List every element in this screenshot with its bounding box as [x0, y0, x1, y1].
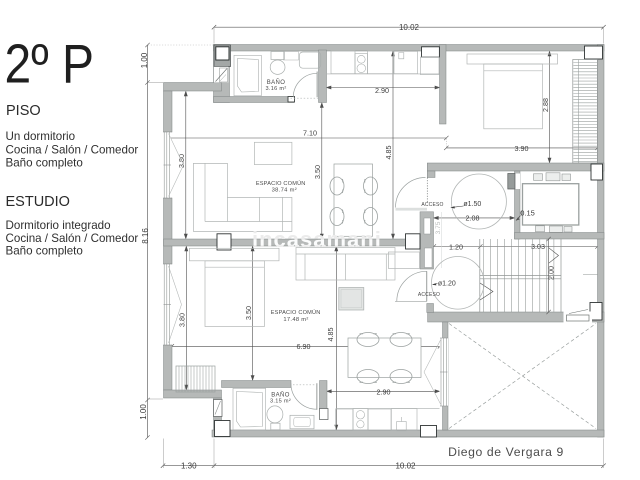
svg-text:1.00: 1.00	[140, 52, 149, 68]
svg-text:3.16 m²: 3.16 m²	[265, 86, 286, 92]
svg-text:10.02: 10.02	[395, 462, 416, 471]
svg-text:ACCESO: ACCESO	[418, 292, 440, 298]
svg-text:ø1.50: ø1.50	[463, 201, 481, 208]
svg-text:8.16: 8.16	[141, 228, 150, 244]
svg-text:ø1.20: ø1.20	[438, 280, 456, 287]
svg-text:Un dormitorio: Un dormitorio	[6, 130, 76, 143]
svg-text:2º P: 2º P	[5, 33, 95, 95]
svg-text:ESPACIO COMÚN: ESPACIO COMÚN	[271, 309, 321, 316]
svg-text:Diego de Vergara 9: Diego de Vergara 9	[448, 445, 564, 459]
svg-text:3.80: 3.80	[178, 313, 187, 327]
svg-text:1.00: 1.00	[139, 404, 148, 420]
svg-text:2.90: 2.90	[375, 86, 389, 95]
svg-text:2.90: 2.90	[377, 387, 391, 396]
svg-text:3.75: 3.75	[435, 221, 442, 234]
svg-text:2.08: 2.08	[466, 213, 480, 222]
svg-text:3.03: 3.03	[531, 242, 545, 251]
svg-text:7.10: 7.10	[303, 129, 317, 138]
svg-text:ACCESO: ACCESO	[421, 202, 443, 208]
svg-text:17.48 m²: 17.48 m²	[283, 317, 308, 323]
svg-text:BAÑO: BAÑO	[271, 392, 290, 399]
svg-text:1.30: 1.30	[181, 462, 197, 471]
svg-text:Baño completo: Baño completo	[6, 244, 83, 257]
svg-text:4.85: 4.85	[384, 146, 393, 160]
svg-text:Dormitorio integrado: Dormitorio integrado	[6, 219, 111, 232]
svg-text:10.02: 10.02	[399, 23, 420, 32]
svg-text:Cocina / Salón / Comedor: Cocina / Salón / Comedor	[6, 232, 139, 245]
svg-text:Baño completo: Baño completo	[6, 157, 83, 170]
svg-text:ESPACIO COMÚN: ESPACIO COMÚN	[256, 180, 306, 187]
svg-text:0.15: 0.15	[520, 208, 535, 217]
svg-text:PISO: PISO	[6, 103, 41, 119]
svg-text:ESTUDIO: ESTUDIO	[6, 194, 70, 210]
svg-text:1.20: 1.20	[449, 242, 463, 251]
svg-text:6.90: 6.90	[297, 342, 311, 351]
svg-text:3.50: 3.50	[313, 165, 322, 179]
svg-text:Cocina / Salón / Comedor: Cocina / Salón / Comedor	[6, 143, 139, 156]
svg-text:3.90: 3.90	[515, 144, 529, 153]
svg-text:3.50: 3.50	[244, 306, 253, 320]
svg-text:38.74 m²: 38.74 m²	[272, 188, 297, 194]
svg-text:3.15 m²: 3.15 m²	[270, 399, 291, 405]
svg-text:4.85: 4.85	[326, 328, 335, 342]
svg-text:BAÑO: BAÑO	[267, 79, 286, 86]
